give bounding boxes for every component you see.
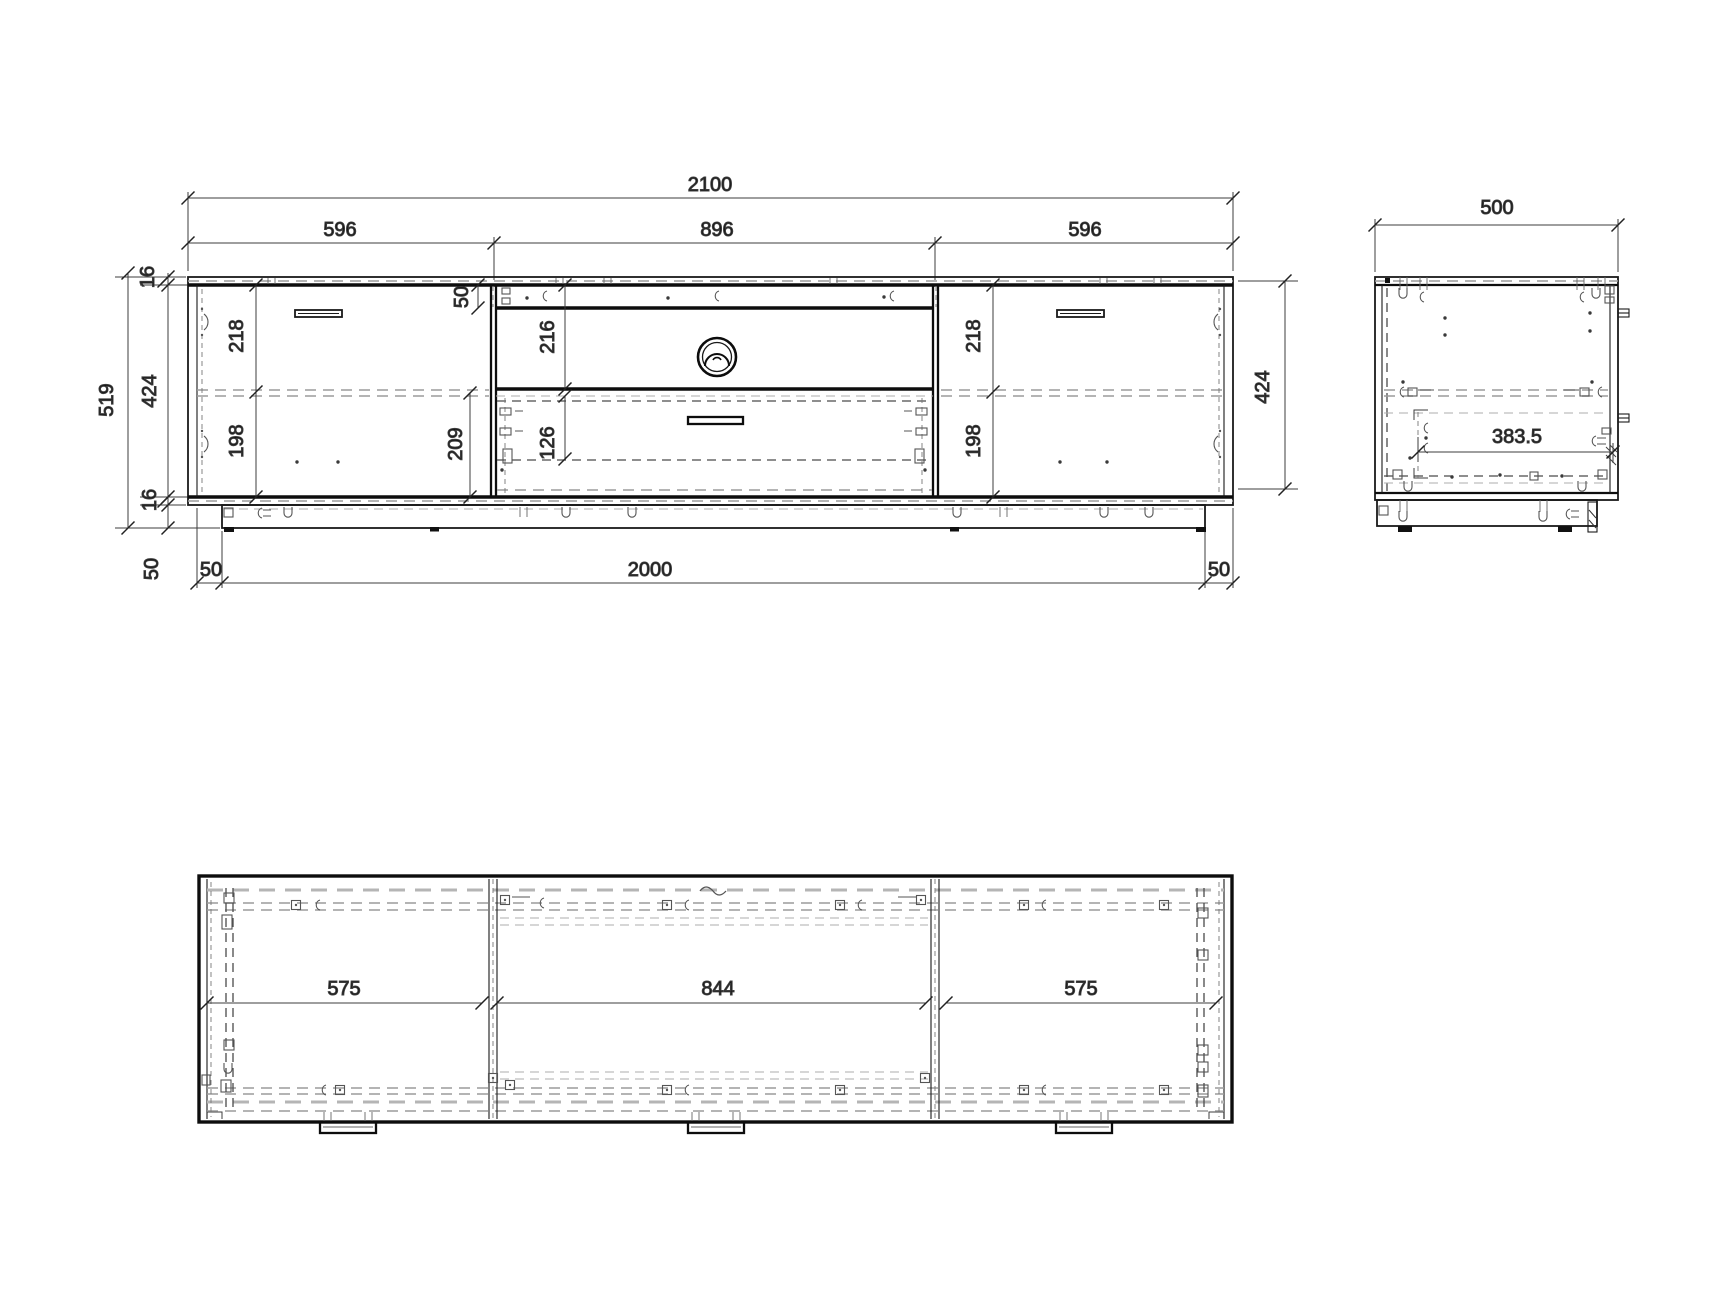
side-view: 500 424 (1238, 197, 1629, 532)
dim-right-lower-compartment: 198 (963, 424, 985, 457)
drawer-slide-left (500, 398, 523, 494)
front-middle-section: 50 216 209 126 (445, 279, 936, 504)
side-carcass (1375, 277, 1629, 500)
dim-left-lower-compartment: 198 (226, 424, 248, 457)
cable-grommet (698, 338, 736, 376)
front-left-door-dimensions: 218 198 (226, 279, 263, 504)
side-foot (1558, 526, 1572, 532)
rail-fittings (502, 288, 894, 304)
dim-front-overall-height: 519 (96, 383, 118, 416)
plinth-foot (430, 527, 439, 532)
dim-side-inner-depth: 383.5 (1492, 426, 1542, 448)
dim-front-interior-height: 424 (139, 374, 161, 407)
side-fittings-bottom (1393, 470, 1607, 491)
side-top-dimension: 500 (1369, 197, 1625, 272)
front-left-dimensions: 519 16 424 16 50 (96, 266, 220, 580)
dim-front-plinth-inset-right: 50 (1208, 559, 1230, 581)
side-front-foot (1588, 502, 1597, 532)
dim-front-plinth-length: 2000 (628, 559, 673, 581)
plan-foot-tab-middle (688, 1112, 744, 1133)
side-fittings-shelf (1400, 380, 1602, 397)
drawer-handle (688, 417, 743, 424)
dim-front-bottom-panel: 16 (139, 489, 161, 511)
front-right-door: 218 198 (941, 279, 1224, 504)
plinth-foot (950, 527, 959, 532)
side-plinth-fittings (1379, 500, 1579, 521)
front-plinth (222, 505, 1206, 532)
plan-foot-tab-right (1056, 1112, 1112, 1133)
side-inner-depth-dimension: 383.5 (1412, 426, 1620, 463)
drawer-slide-right (904, 398, 927, 494)
dim-front-right-section: 596 (1068, 219, 1101, 241)
side-plinth (1377, 500, 1597, 532)
dim-front-top-panel: 16 (137, 266, 159, 288)
plinth-foot (1196, 527, 1206, 532)
dim-tv-compartment: 216 (537, 320, 559, 353)
dim-plan-middle-section: 844 (701, 978, 734, 1000)
plinth-foot (224, 527, 234, 532)
left-door-hinge-top (201, 308, 208, 336)
dim-front-middle-section: 896 (700, 219, 733, 241)
side-wall-tabs (1618, 309, 1629, 422)
dim-side-depth: 500 (1480, 197, 1513, 219)
technical-drawing-page: { "front_view": { "overall_width": "2100… (0, 0, 1727, 1295)
dim-plan-left-section: 575 (327, 978, 360, 1000)
plan-dashed-rows (207, 890, 1224, 1111)
front-top-dimensions: 2100 596 896 596 (182, 174, 1240, 280)
plan-view: 575 844 575 (199, 876, 1232, 1133)
right-door-hinge-bottom (1214, 430, 1221, 458)
dim-right-upper-compartment: 218 (963, 319, 985, 352)
dim-front-overall-width: 2100 (688, 174, 733, 196)
front-view: 2100 596 896 596 519 16 424 16 50 (96, 174, 1240, 590)
front-left-door: 218 198 (197, 279, 489, 504)
side-foot (1398, 526, 1412, 532)
furniture-technical-drawing: 2100 596 896 596 519 16 424 16 50 (0, 0, 1727, 1295)
dim-top-rail-height: 50 (451, 286, 473, 308)
dim-drawer-front: 126 (537, 426, 559, 459)
plan-foot-tab-left (320, 1112, 376, 1133)
dim-plan-right-section: 575 (1064, 978, 1097, 1000)
front-bottom-dimensions: 50 2000 50 (191, 508, 1240, 590)
front-right-door-dimensions: 218 198 (963, 279, 1000, 504)
side-height-dimension: 424 (1238, 275, 1298, 496)
dim-drawer-opening: 209 (445, 427, 467, 460)
front-middle-dimensions: 50 216 209 126 (445, 279, 572, 504)
dim-front-plinth-inset-left: 50 (200, 559, 222, 581)
dim-front-left-section: 596 (323, 219, 356, 241)
dim-left-upper-compartment: 218 (226, 319, 248, 352)
front-carcass (188, 277, 1233, 505)
right-door-hinge-top (1214, 308, 1221, 336)
plan-dimensions: 575 844 575 (201, 978, 1223, 1010)
dim-side-height: 424 (1252, 370, 1274, 403)
dim-front-plinth-height: 50 (141, 558, 163, 580)
drawer (496, 396, 933, 494)
